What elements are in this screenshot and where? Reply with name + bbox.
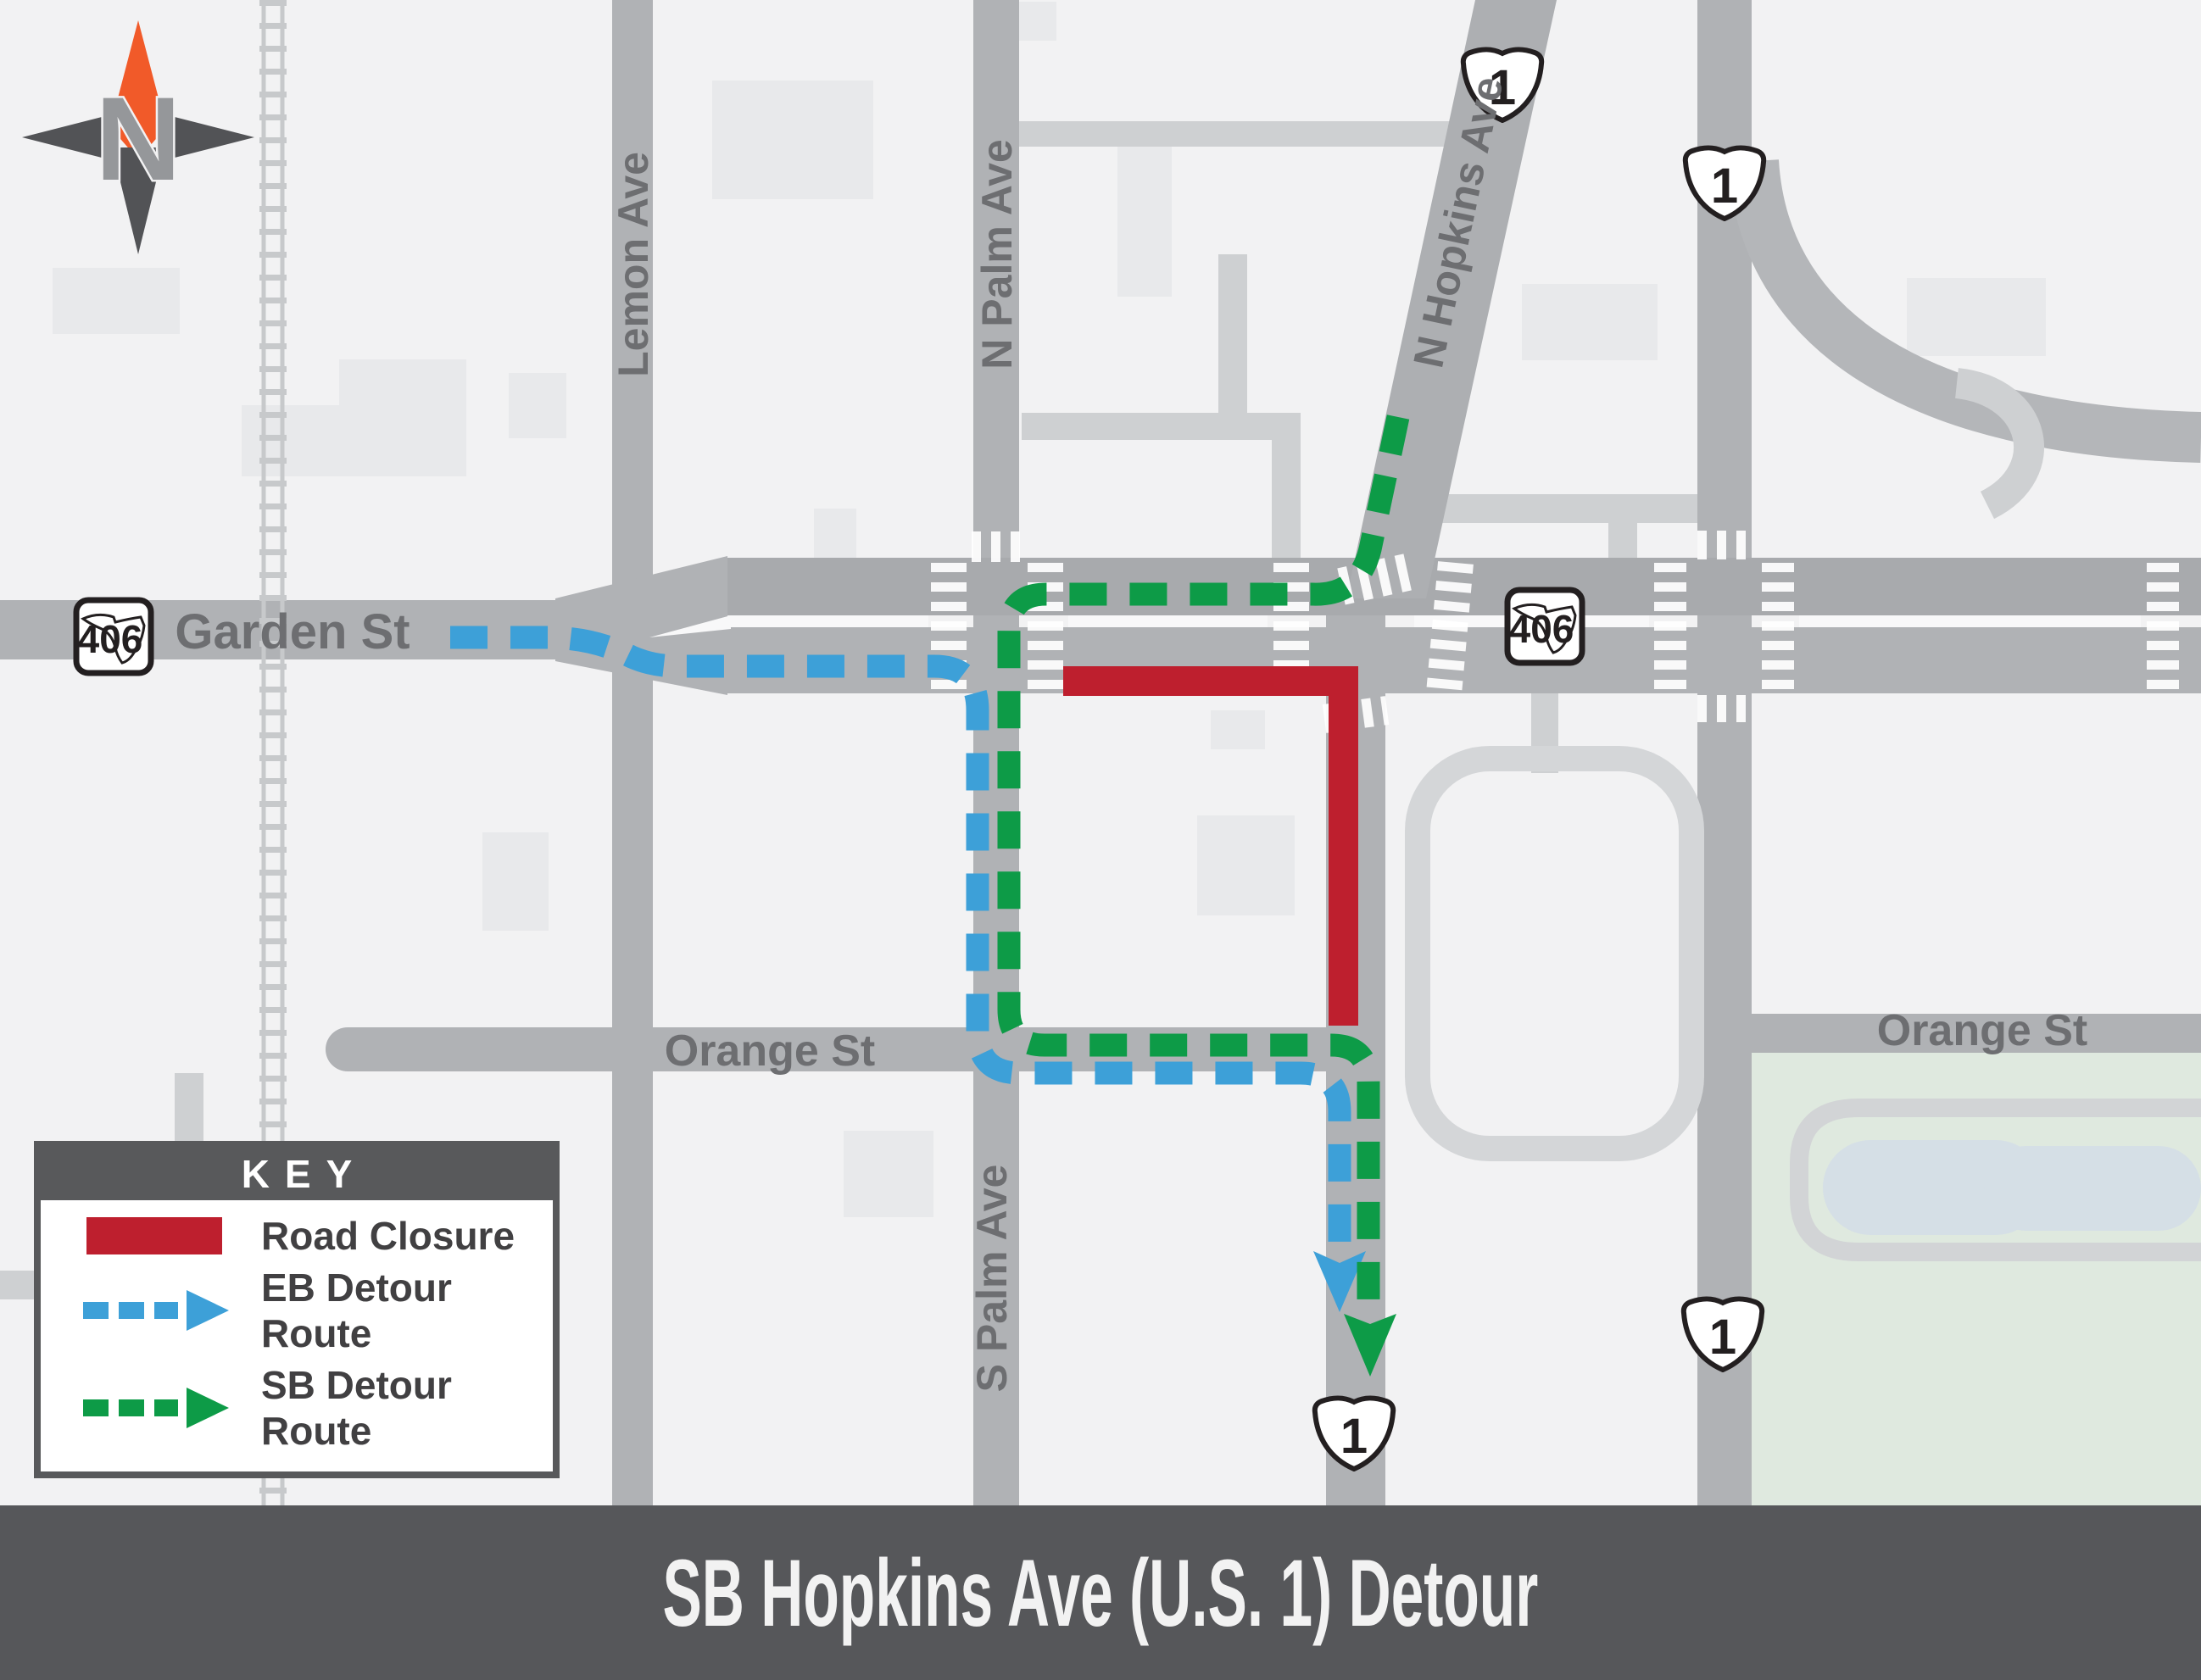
us1-shield-icon: 1	[1680, 143, 1769, 225]
svg-text:406: 406	[1509, 607, 1574, 651]
eb-detour-route	[450, 637, 1340, 1244]
svg-text:406: 406	[78, 617, 143, 661]
map-key-legend: KEY Road Closure EB Detour Route	[34, 1141, 560, 1478]
compass-icon: N	[22, 20, 254, 254]
label-s-palm-ave: S Palm Ave	[971, 1165, 1013, 1393]
us1-shield-icon: 1	[1310, 1394, 1398, 1476]
garden-median	[649, 615, 2141, 637]
key-header: KEY	[41, 1148, 553, 1200]
fl406-shield-icon: 406	[1504, 587, 1585, 670]
svg-text:1: 1	[1709, 1310, 1736, 1365]
key-label-sb-detour: SB Detour Route	[261, 1362, 553, 1454]
map-title: SB Hopkins Ave (U.S. 1) Detour	[663, 1538, 1539, 1648]
title-bar: SB Hopkins Ave (U.S. 1) Detour	[0, 1505, 2201, 1680]
park-loop-road	[1799, 1108, 2201, 1252]
label-orange-st-west: Orange St	[665, 1029, 876, 1073]
svg-text:1: 1	[1340, 1409, 1368, 1464]
label-garden-st: Garden St	[175, 608, 410, 657]
road-closure-highlight	[1063, 666, 1358, 1026]
key-row-eb-detour: EB Detour Route	[83, 1265, 553, 1356]
parking-loop-road	[1418, 759, 1691, 1149]
fl406-shield-icon: 406	[73, 597, 154, 681]
road-closure-swatch-icon	[83, 1215, 229, 1256]
key-row-sb-detour: SB Detour Route	[83, 1362, 553, 1454]
svg-text:1: 1	[1711, 159, 1738, 214]
key-label-eb-detour: EB Detour Route	[261, 1265, 553, 1356]
key-row-road-closure: Road Closure	[83, 1213, 553, 1259]
label-orange-st-east: Orange St	[1877, 1009, 2088, 1053]
label-n-palm-ave: N Palm Ave	[976, 139, 1018, 369]
us1-shield-icon: 1	[1679, 1294, 1767, 1377]
sb-detour-swatch-icon	[83, 1388, 229, 1428]
label-lemon-ave: Lemon Ave	[612, 152, 655, 377]
eb-detour-swatch-icon	[83, 1290, 229, 1331]
detour-map: N 1 1 1 1 406	[0, 0, 2201, 1680]
sb-detour-arrowhead-icon	[1344, 1314, 1396, 1377]
key-label-road-closure: Road Closure	[261, 1213, 515, 1259]
compass-north-letter: N	[95, 72, 181, 205]
